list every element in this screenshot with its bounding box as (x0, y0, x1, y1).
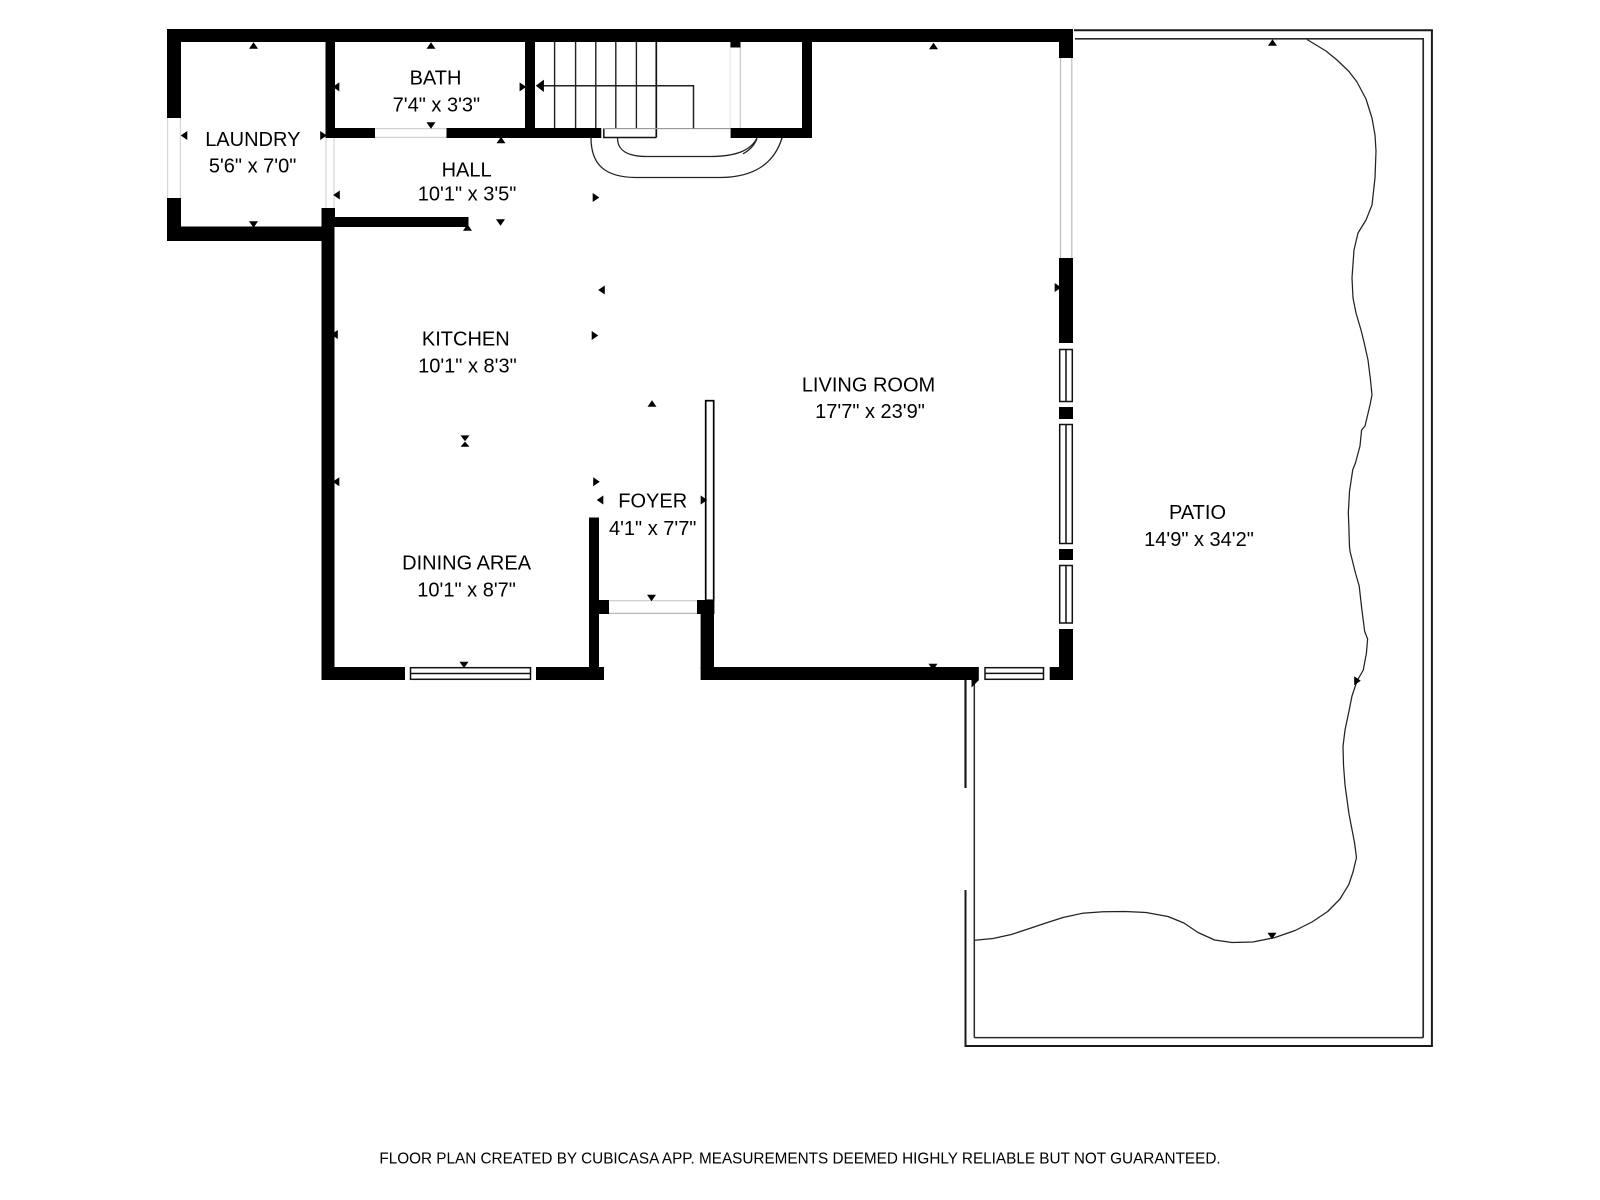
svg-text:DINING AREA: DINING AREA (402, 553, 532, 575)
svg-text:LAUNDRY: LAUNDRY (205, 129, 300, 151)
svg-text:14'9" x 34'2": 14'9" x 34'2" (1144, 529, 1254, 551)
svg-text:10'1" x 3'5": 10'1" x 3'5" (418, 184, 517, 206)
svg-text:FLOOR PLAN CREATED BY CUBICASA: FLOOR PLAN CREATED BY CUBICASA APP. MEAS… (379, 1151, 1220, 1168)
svg-text:LIVING ROOM: LIVING ROOM (802, 375, 935, 397)
svg-text:17'7" x 23'9": 17'7" x 23'9" (815, 401, 925, 423)
svg-text:FOYER: FOYER (618, 491, 687, 513)
svg-text:KITCHEN: KITCHEN (422, 329, 510, 351)
svg-text:HALL: HALL (442, 160, 492, 182)
svg-text:10'1" x 8'7": 10'1" x 8'7" (417, 580, 516, 602)
svg-text:PATIO: PATIO (1169, 502, 1226, 524)
svg-text:BATH: BATH (410, 68, 462, 90)
svg-text:4'1" x 7'7": 4'1" x 7'7" (609, 518, 696, 540)
svg-text:5'6" x 7'0": 5'6" x 7'0" (209, 156, 296, 178)
svg-text:7'4" x 3'3": 7'4" x 3'3" (393, 95, 480, 117)
svg-text:10'1" x 8'3": 10'1" x 8'3" (418, 356, 517, 378)
